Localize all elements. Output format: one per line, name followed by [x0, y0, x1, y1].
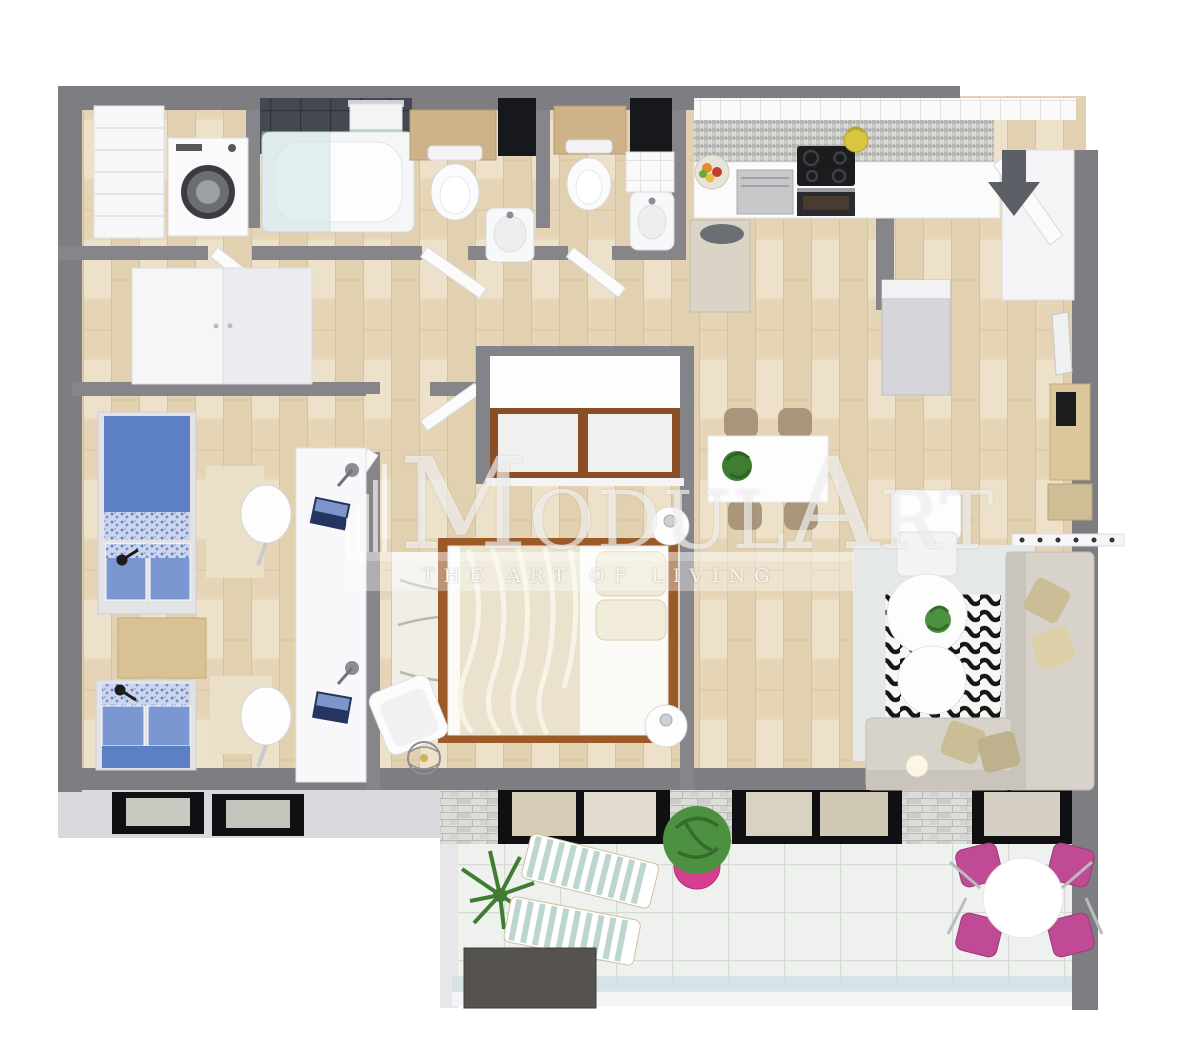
sliding-glass-door-3 [972, 784, 1072, 844]
cooktop [797, 146, 855, 186]
lounge-armchair [893, 490, 961, 576]
kids-desk [296, 448, 366, 782]
hall-cabinet [882, 280, 950, 395]
bathtub [262, 132, 414, 232]
kids-bed-2 [96, 680, 196, 770]
floor-plan-image: M ODUL A RT THE ART OF LIVING [0, 0, 1193, 1050]
oven [797, 188, 855, 216]
fruit-bowl [695, 155, 729, 189]
table-plant [722, 451, 752, 481]
balcony-storage-box [464, 948, 596, 1008]
dishwasher [737, 170, 793, 214]
master-bed [438, 538, 678, 743]
hall-console [1048, 384, 1092, 520]
kettle [844, 128, 868, 152]
dark-wall-panel-2 [630, 98, 672, 152]
kids-wardrobe [132, 268, 312, 384]
kitchen-wall-tiles [694, 98, 1076, 120]
dining-table [708, 436, 828, 502]
laundry-shelving-unit [94, 106, 164, 238]
hall-mirror [1052, 312, 1072, 375]
sliding-glass-door-2 [732, 784, 902, 844]
kids-nightstand [118, 618, 206, 678]
kids-bed-1 [98, 412, 196, 614]
glass-screen [262, 132, 330, 232]
sliding-wardrobe-alcove [476, 346, 694, 486]
coat-rack [1012, 534, 1124, 546]
dark-wall-panel-1 [498, 98, 536, 156]
coffee-table-plant [925, 607, 951, 633]
wc-washbasin [626, 152, 674, 250]
floor-plan-drawing [0, 0, 1193, 1050]
washing-machine [168, 138, 248, 236]
living-floor-lamp [906, 755, 928, 777]
bathroom-washbasin [486, 208, 534, 262]
sliding-glass-door-1 [498, 784, 670, 844]
kitchen-bar-table [690, 220, 750, 312]
